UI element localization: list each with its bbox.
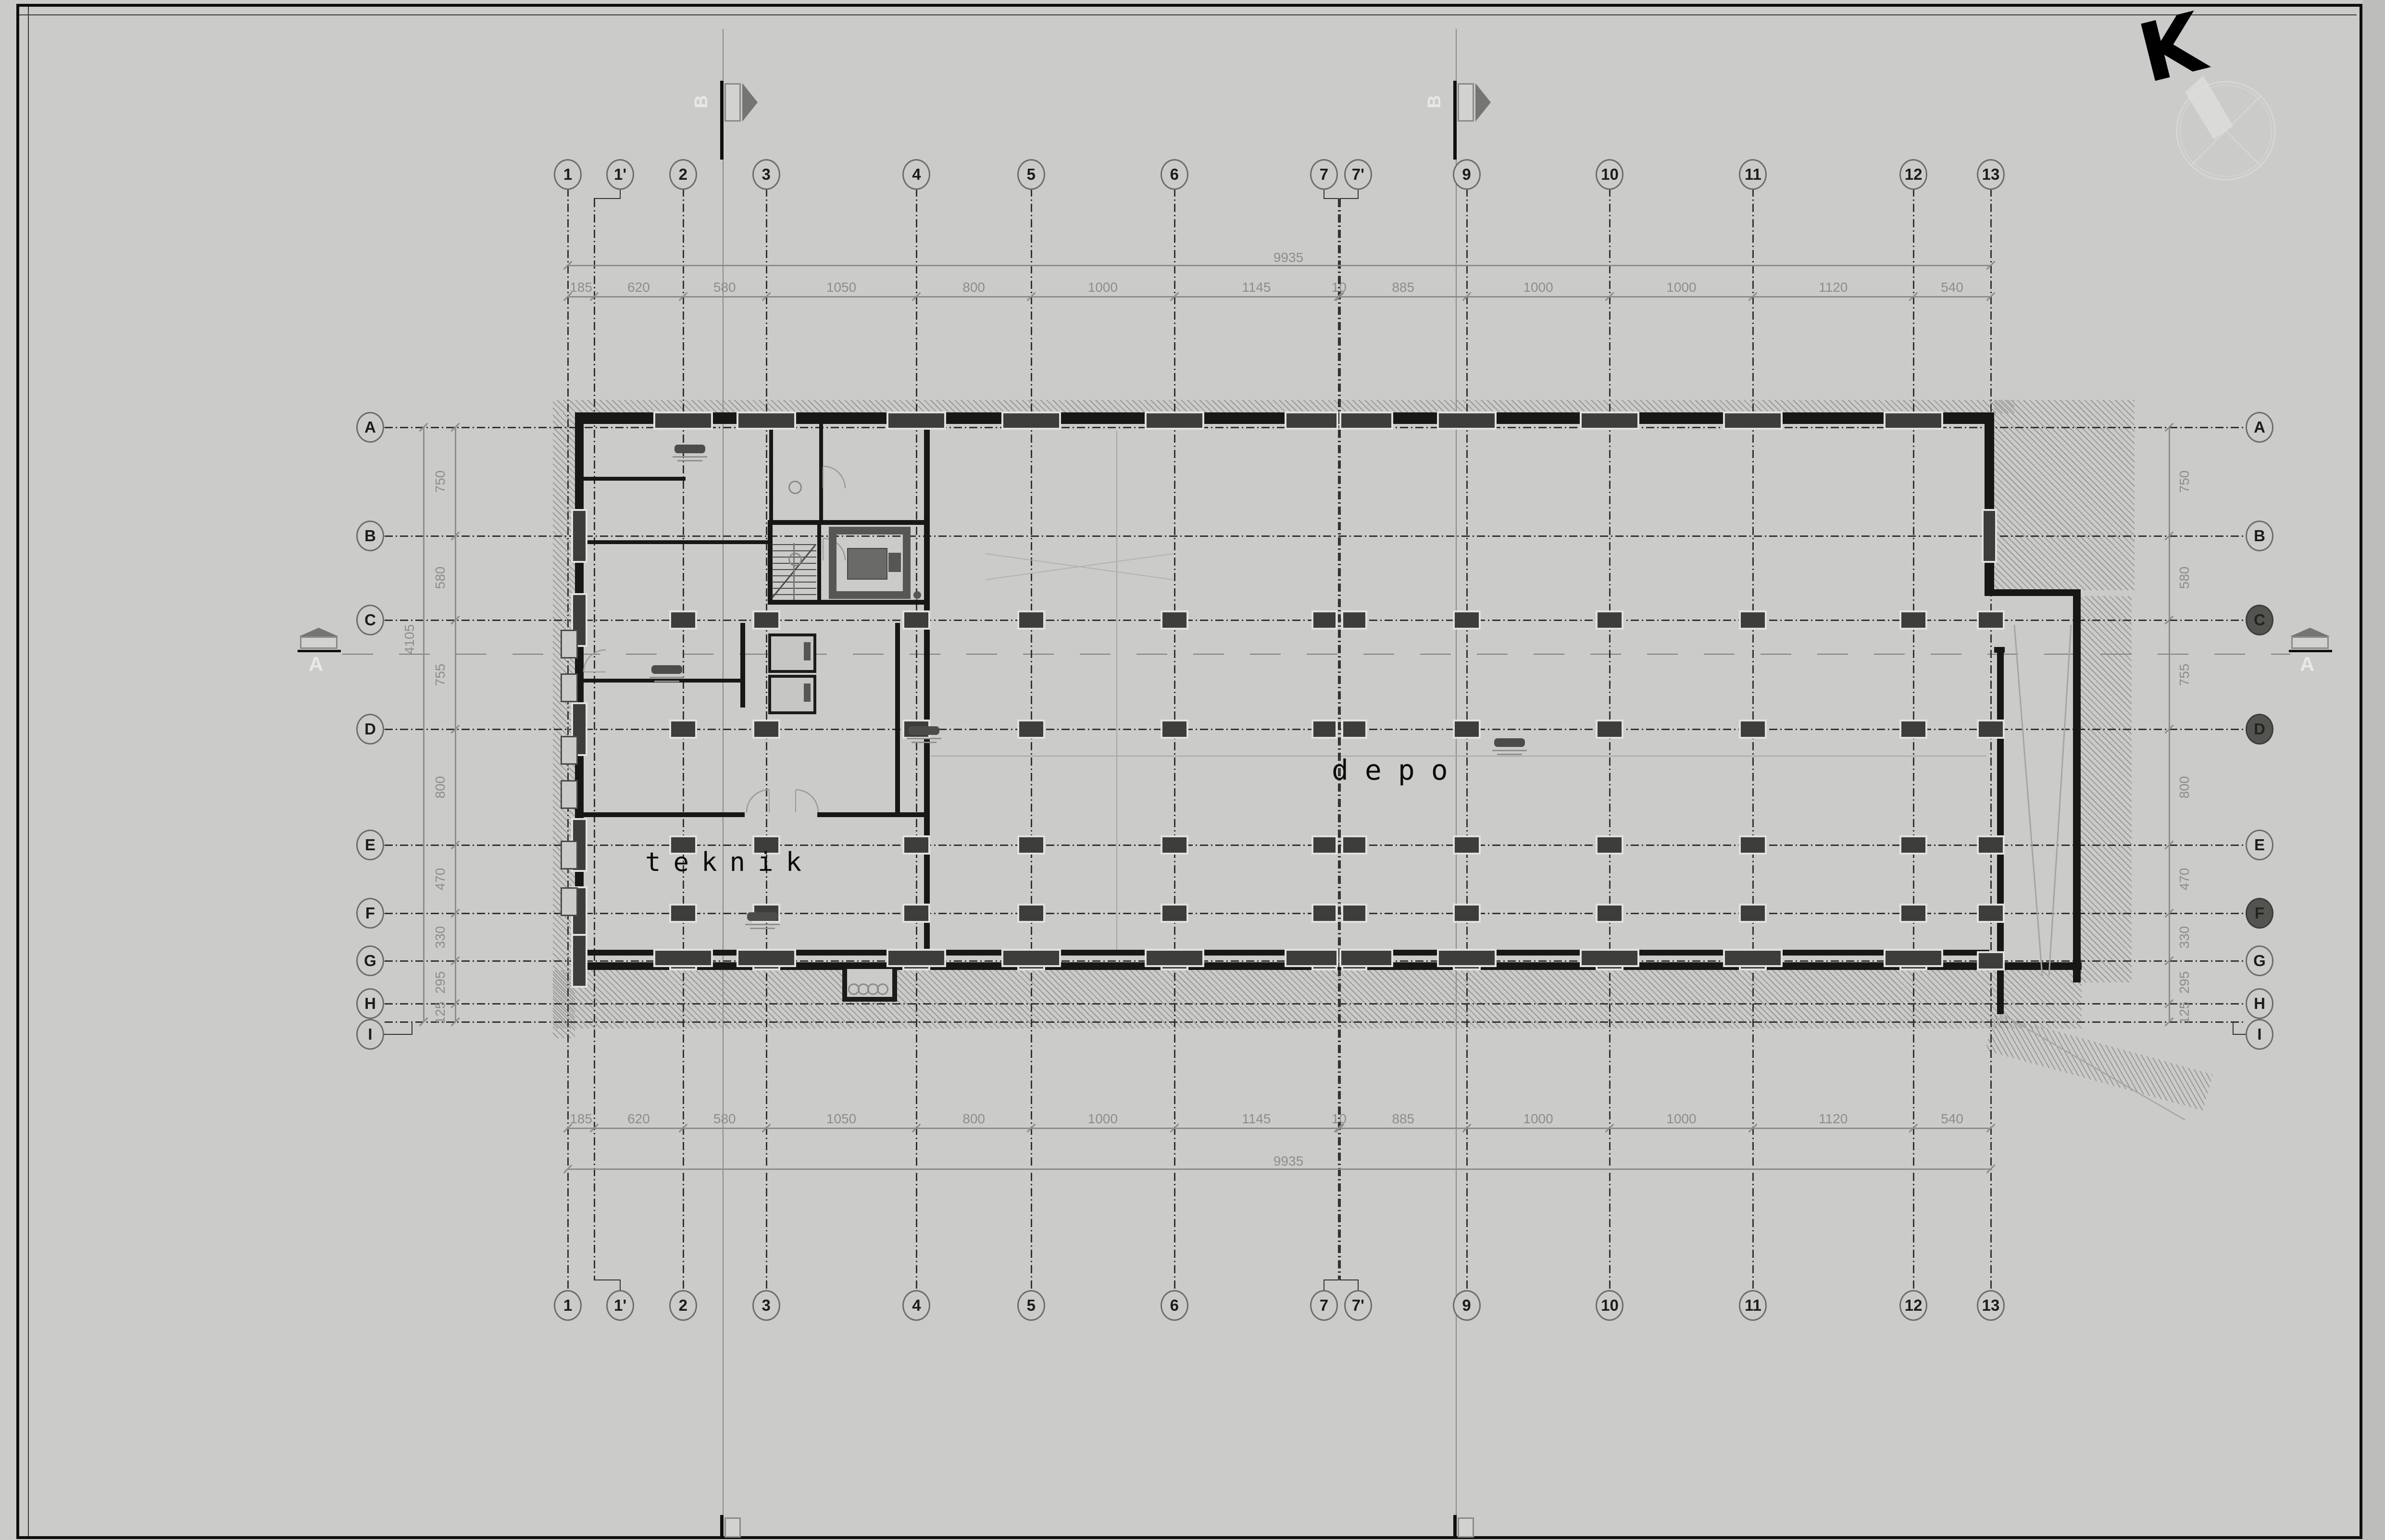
room-tag-text-line: [1492, 750, 1527, 751]
row-bubble-left-D: D: [356, 714, 384, 745]
room-tag-chip: [1494, 738, 1525, 747]
section-flag-bar: [720, 81, 724, 160]
room-tag-text-line: [1497, 754, 1522, 755]
section-flag-box: [1458, 83, 1474, 122]
section-flag-bar: [1453, 81, 1457, 160]
section-flag-box: [724, 1517, 741, 1538]
construction-overlay: [0, 0, 2385, 1540]
door-swing-arcs: [584, 466, 845, 812]
room-tag-chip: [651, 665, 682, 674]
grid-bubble-bottom-1: 1: [554, 1290, 582, 1321]
row-bubble-right-E: E: [2246, 830, 2273, 860]
room-tag-text-line: [750, 928, 775, 929]
section-flag-bar: [1453, 1515, 1457, 1537]
section-letter: B: [1424, 95, 1445, 108]
elevator-machinery: [829, 527, 911, 534]
row-bubble-left-A: A: [356, 412, 384, 443]
section-flag-box: [300, 636, 337, 649]
pit-pipe-circle: [877, 983, 888, 995]
section-flag-arrow-icon: [1475, 83, 1491, 122]
row-bubble-left-B: B: [356, 521, 384, 551]
room-label-teknik: teknik: [645, 847, 814, 877]
grid-bubble-top-7: 7: [1310, 159, 1338, 190]
grid-bubble-top-12: 12: [1899, 159, 1927, 190]
room-tag-chip: [909, 726, 939, 735]
grid-bubble-bottom-10: 10: [1596, 1290, 1623, 1321]
row-bubble-left-G: G: [356, 945, 384, 976]
grid-bubble-bottom-5: 5: [1017, 1290, 1045, 1321]
grid-bubble-top-13: 13: [1977, 159, 2005, 190]
grid-bubble-bottom-4: 4: [902, 1290, 930, 1321]
section-flag-box: [724, 83, 741, 122]
drawing-sheet: K B: [0, 0, 2385, 1540]
grid-bubble-bottom-9: 9: [1453, 1290, 1481, 1321]
grid-bubble-top-5: 5: [1017, 159, 1045, 190]
elevator-machinery: [829, 527, 837, 599]
row-bubble-right-A: A: [2246, 412, 2273, 443]
row-bubble-left-C: C: [356, 605, 384, 635]
row-bubble-right-C: C: [2246, 605, 2273, 635]
grid-bubble-bottom-7': 7': [1344, 1290, 1372, 1321]
section-letter: A: [2300, 653, 2314, 676]
row-bubble-right-H: H: [2246, 988, 2273, 1019]
room-tag-text-line: [654, 681, 679, 682]
door-tag-ring: [788, 481, 802, 494]
grid-bubble-bottom-13: 13: [1977, 1290, 2005, 1321]
elevator-machinery-pulley: [913, 591, 921, 599]
grid-bubble-top-10: 10: [1596, 159, 1623, 190]
grid-bubble-top-3: 3: [752, 159, 780, 190]
elevator-machinery: [829, 591, 911, 599]
grid-bubble-bottom-12: 12: [1899, 1290, 1927, 1321]
grid-bubble-top-4: 4: [902, 159, 930, 190]
row-bubble-right-D: D: [2246, 714, 2273, 745]
row-bubble-left-F: F: [356, 898, 384, 929]
grid-bubble-bottom-6: 6: [1161, 1290, 1188, 1321]
room-tag-chip: [747, 912, 778, 921]
room-tag-text-line: [912, 742, 937, 743]
room-tag-text-line: [907, 738, 941, 739]
elevator-machinery: [888, 553, 901, 572]
section-flag-box: [1458, 1517, 1474, 1538]
row-bubble-right-I: I: [2246, 1019, 2273, 1050]
section-letter: B: [691, 95, 712, 108]
grid-bubble-bottom-3: 3: [752, 1290, 780, 1321]
elevator-door: [804, 683, 811, 702]
section-flag-box: [2291, 636, 2329, 649]
grid-bubble-bottom-7: 7: [1310, 1290, 1338, 1321]
grid-bubble-bottom-2: 2: [669, 1290, 697, 1321]
room-tag-text-line: [649, 677, 684, 678]
elevator-machinery: [903, 527, 911, 599]
grid-bubble-top-9: 9: [1453, 159, 1481, 190]
section-flag-line: [298, 650, 341, 652]
grid-bubble-top-11: 11: [1739, 159, 1767, 190]
elevator-machinery-core: [847, 548, 887, 580]
room-label-depo: depo: [1332, 754, 1464, 786]
room-tag-text-line: [745, 924, 780, 925]
row-bubble-left-H: H: [356, 988, 384, 1019]
grid-bubble-bottom-1': 1': [606, 1290, 634, 1321]
roof-drain-lines: [986, 554, 1173, 580]
room-tag-chip: [674, 445, 705, 453]
grid-bubble-bottom-11: 11: [1739, 1290, 1767, 1321]
grid-bubble-top-7': 7': [1344, 159, 1372, 190]
section-letter: A: [309, 653, 323, 676]
row-bubble-left-I: I: [356, 1019, 384, 1050]
ramp-lines: [2004, 625, 2185, 1120]
section-flag-bar: [720, 1515, 724, 1537]
stair-rail: [793, 543, 795, 600]
grid-bubble-top-1': 1': [606, 159, 634, 190]
elevator-door: [804, 642, 811, 660]
section-flag-arrow-icon: [742, 83, 758, 122]
row-bubble-right-F: F: [2246, 898, 2273, 929]
door-tag-ring: [788, 553, 802, 566]
grid-bubble-top-2: 2: [669, 159, 697, 190]
row-bubble-right-G: G: [2246, 945, 2273, 976]
grid-bubble-top-6: 6: [1161, 159, 1188, 190]
row-bubble-left-E: E: [356, 830, 384, 860]
grid-bubble-top-1: 1: [554, 159, 582, 190]
room-tag-text-line: [673, 456, 707, 458]
room-tag-text-line: [677, 460, 702, 461]
section-flag-line: [2289, 650, 2332, 652]
row-bubble-right-B: B: [2246, 521, 2273, 551]
